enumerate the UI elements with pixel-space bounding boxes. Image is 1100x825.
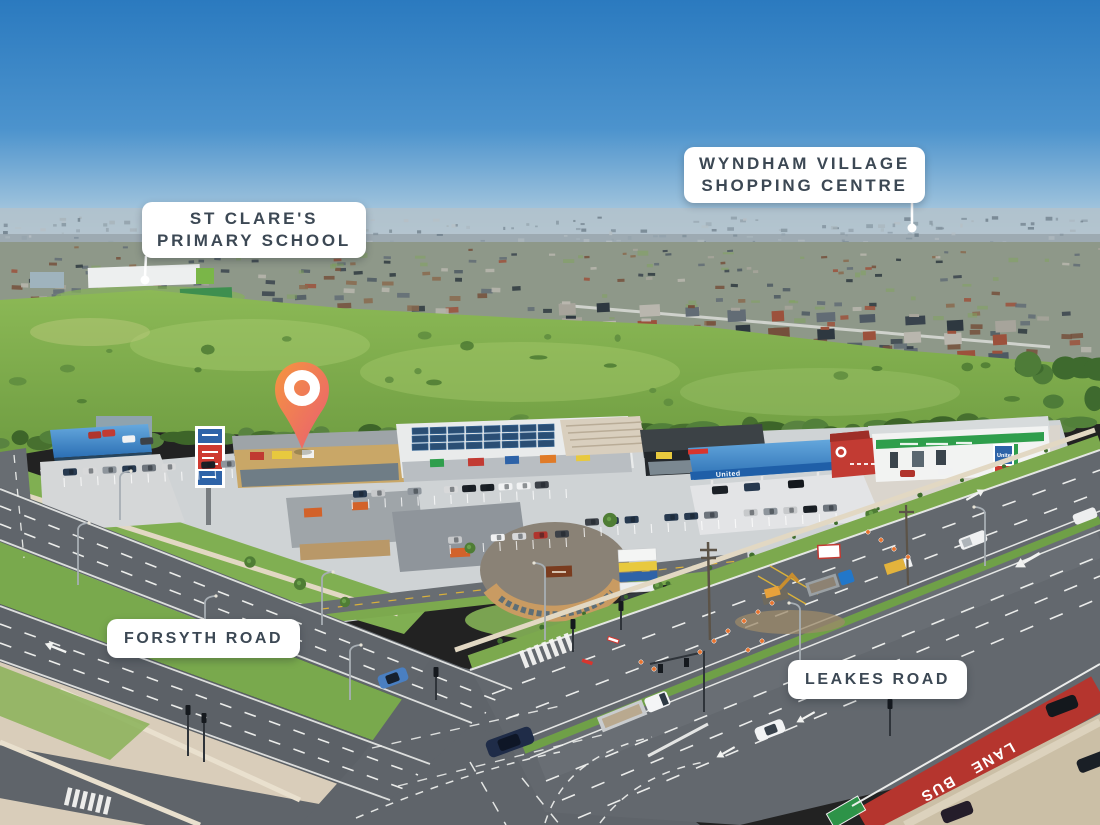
callout-forsyth-road: FORSYTH ROAD [107, 619, 300, 658]
aerial-site-photo: United [0, 0, 1100, 825]
callout-school-line2: PRIMARY SCHOOL [157, 230, 351, 252]
callout-leakes-road: LEAKES ROAD [788, 660, 967, 699]
callout-shopping-centre-line2: SHOPPING CENTRE [699, 175, 910, 197]
callout-shopping-centre-line1: WYNDHAM VILLAGE [699, 153, 910, 175]
callout-shopping-centre: WYNDHAM VILLAGE SHOPPING CENTRE [684, 147, 925, 203]
scene-svg: United [0, 0, 1100, 825]
callout-school: ST CLARE'S PRIMARY SCHOOL [142, 202, 366, 258]
liquor-store-building [830, 430, 876, 478]
callout-school-line1: ST CLARE'S [157, 208, 351, 230]
